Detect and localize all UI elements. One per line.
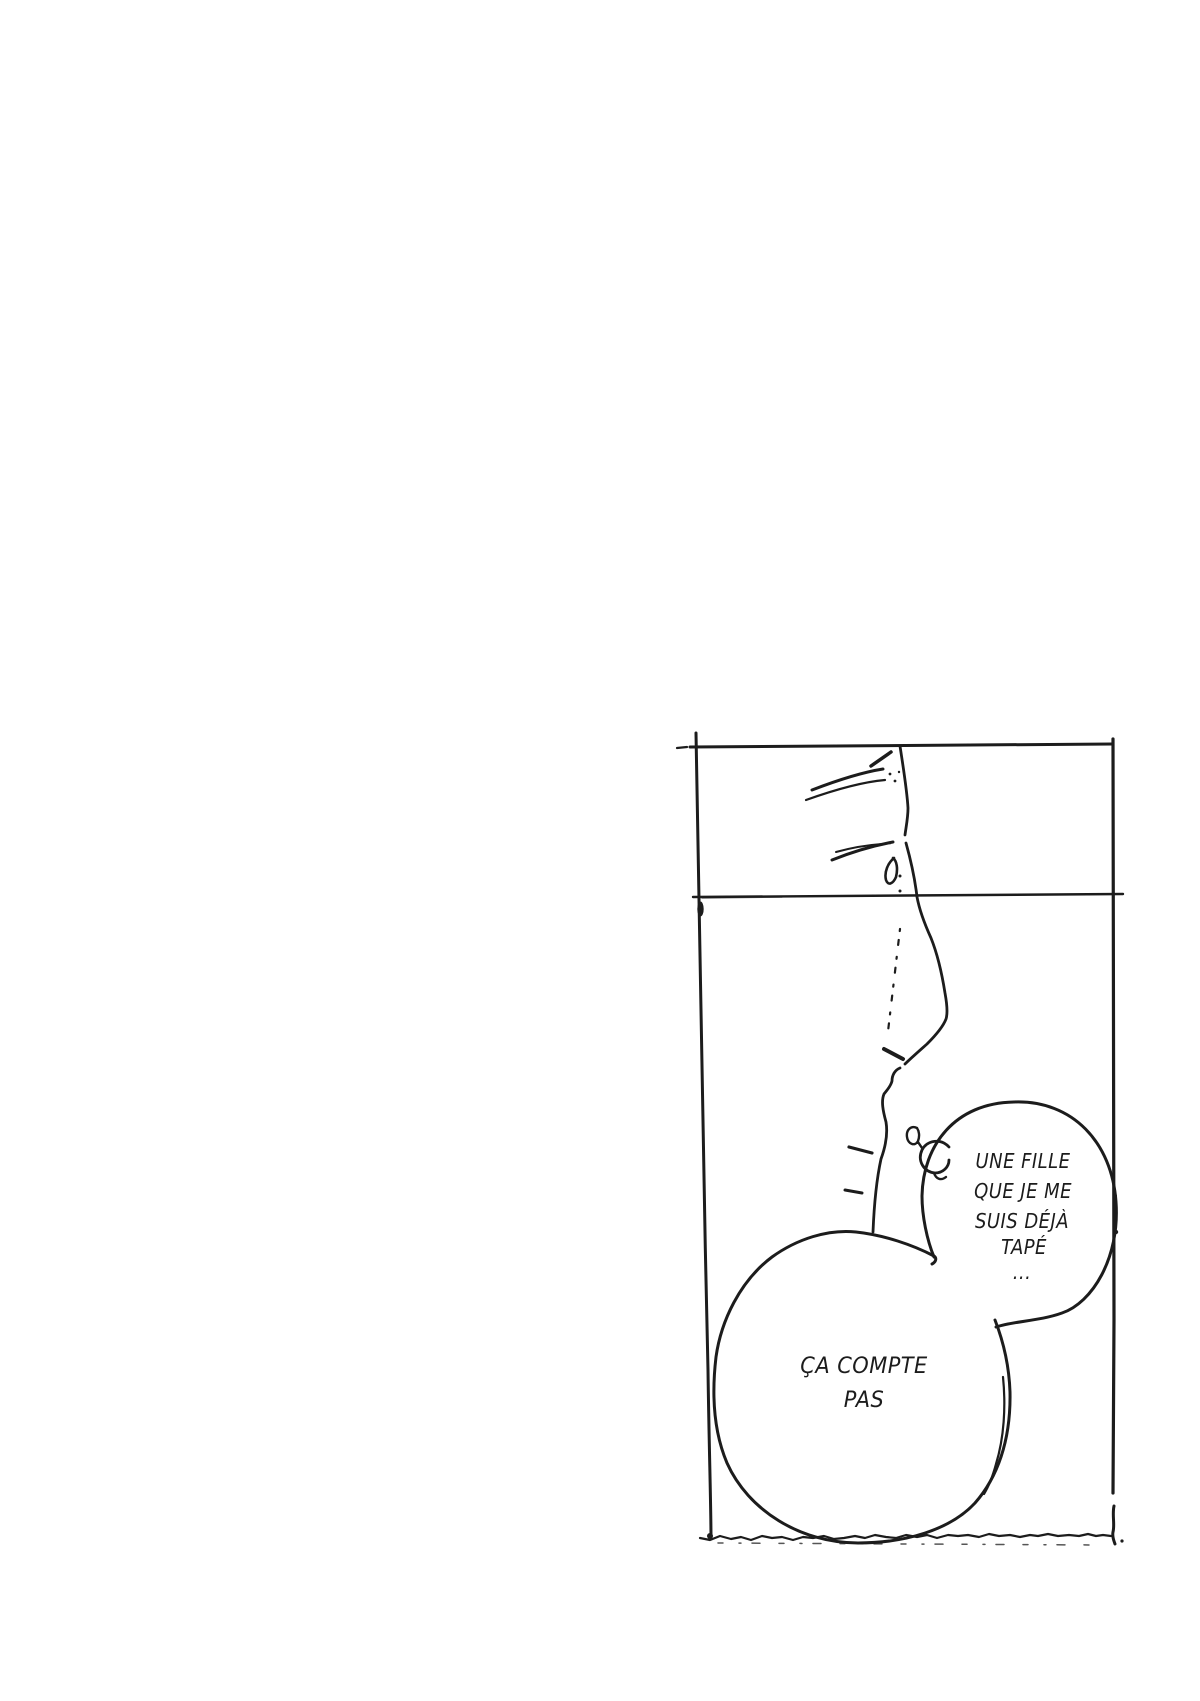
bubble-text-line: SUIS DÉJÀ	[975, 1211, 1069, 1231]
nose-line	[905, 843, 947, 1064]
forehead-line	[900, 746, 908, 835]
panel-border-top	[690, 744, 1113, 747]
construction-dotted-line	[887, 929, 900, 1040]
bubble-text-line: TAPÉ	[1001, 1237, 1047, 1257]
eye-dot	[899, 890, 902, 893]
panel-artwork	[0, 0, 1200, 1701]
panel-divider-line	[693, 894, 1123, 897]
brow-dot	[889, 842, 892, 845]
panel-border-top-stray-dash	[677, 747, 687, 748]
bubble-border-node	[1113, 1194, 1117, 1198]
panel-border-bottom-ghost	[718, 1543, 1098, 1545]
bubble-text-line: UNE FILLE	[976, 1151, 1071, 1171]
panel-border-right	[1113, 739, 1114, 1493]
bubble-text-ellipsis: ...	[1013, 1262, 1032, 1282]
ink-blot-left-border	[697, 902, 703, 917]
neck-dash-lower	[845, 1190, 862, 1193]
panel-divider-overstroke	[702, 897, 782, 898]
hair-dot	[898, 771, 900, 773]
panel-border-left	[696, 733, 711, 1539]
earring-oval	[907, 1127, 922, 1148]
hair-tick	[871, 752, 891, 766]
panel-border-right-lower	[1113, 1506, 1115, 1544]
chin-neck-line	[873, 1068, 900, 1232]
eye-loop	[885, 858, 897, 884]
hair-dot	[894, 780, 897, 783]
hair-dot	[889, 773, 892, 776]
bubble-text-line: PAS	[844, 1390, 885, 1412]
nostril-dash	[884, 1049, 903, 1059]
panel-frame	[677, 733, 1124, 1545]
neck-dash-upper	[849, 1147, 872, 1153]
bubble-border-node	[1114, 1230, 1118, 1234]
comic-page-scan: UNE FILLE QUE JE ME SUIS DÉJÀ TAPÉ ... Ç…	[0, 0, 1200, 1701]
bubble-text-line: QUE JE ME	[974, 1181, 1072, 1201]
eye-dot	[899, 875, 902, 878]
bubble-text-line: ÇA COMPTE	[800, 1356, 927, 1378]
hair-stroke-lower	[806, 780, 885, 800]
ink-fleck-right	[1120, 1539, 1123, 1542]
